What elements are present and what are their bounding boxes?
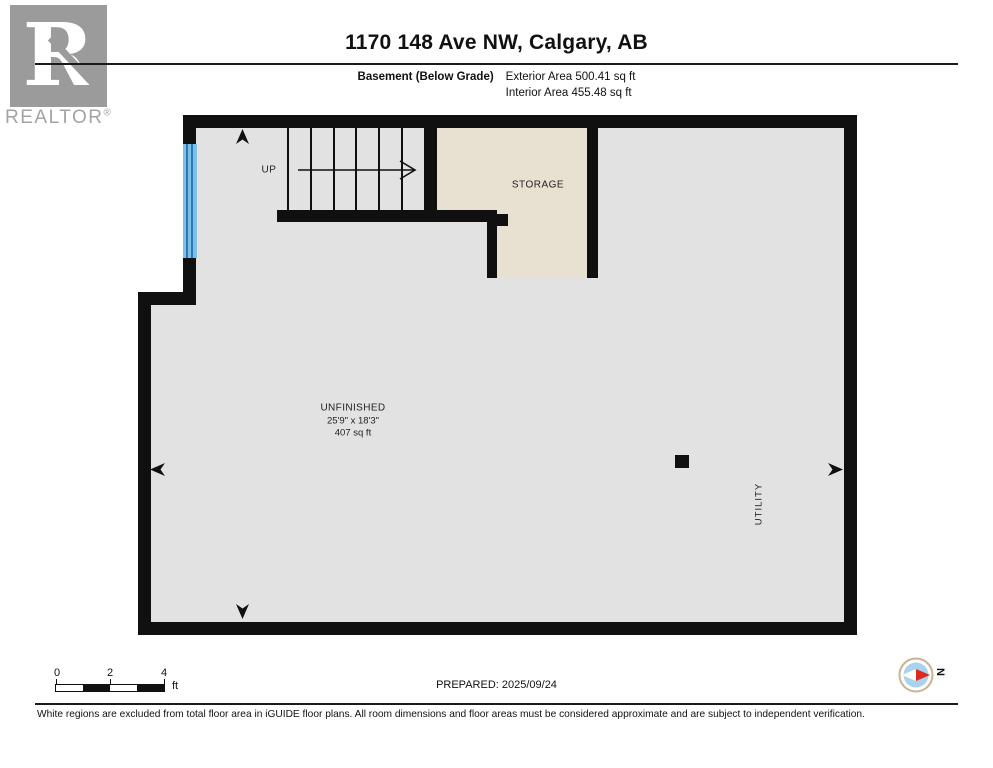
scale-label-2: 2 [107, 667, 113, 679]
area-summary: Exterior Area 500.41 sq ft Interior Area… [506, 69, 636, 101]
floor-storage-lower [497, 222, 587, 278]
realtor-logo-letter: R [23, 13, 94, 99]
disclaimer-text: White regions are excluded from total fl… [37, 709, 973, 720]
window-pane-line [186, 144, 188, 258]
floor-info: Basement (Below Grade) Exterior Area 500… [0, 69, 993, 101]
compass-icon [897, 656, 935, 694]
realtor-wordmark: REALTOR® [5, 107, 112, 129]
unfinished-room-label: UNFINISHED 25'9" x 18'3" 407 sq ft [320, 402, 385, 440]
wall-storage-left-lower [487, 222, 497, 278]
storage-room-label: STORAGE [512, 180, 564, 191]
wall-door-stub [497, 214, 508, 226]
wall-left-lower [138, 292, 151, 635]
realtor-logo: R [10, 5, 107, 107]
room-dimensions: 25'9" x 18'3" [320, 415, 385, 428]
floor-name-label: Basement (Below Grade) [358, 69, 494, 101]
exterior-area-value: Exterior Area 500.41 sq ft [506, 69, 636, 85]
room-area: 407 sq ft [320, 427, 385, 440]
prepared-date: PREPARED: 2025/09/24 [0, 679, 993, 691]
window-pane-line [191, 144, 193, 258]
stair-direction-arrow [296, 157, 422, 183]
header-divider [35, 63, 958, 65]
utility-room-label: UTILITY [754, 483, 765, 525]
interior-area-value: Interior Area 455.48 sq ft [506, 85, 636, 101]
room-name: UNFINISHED [320, 402, 385, 415]
wall-right [844, 115, 857, 635]
window-marker [183, 144, 197, 258]
wall-storage-right [587, 128, 598, 278]
wall-bottom [138, 622, 857, 635]
floor-left-extension [151, 305, 196, 622]
footer-divider [35, 703, 958, 705]
support-post [675, 455, 689, 468]
wall-top [183, 115, 857, 128]
registered-mark: ® [104, 108, 113, 119]
wall-stairs-bottom [277, 210, 497, 222]
wall-stairs-storage-divider [424, 128, 437, 222]
scale-label-0: 0 [54, 667, 60, 679]
scale-label-4: 4 [161, 667, 167, 679]
up-label: UP [262, 165, 277, 176]
page-title: 1170 148 Ave NW, Calgary, AB [0, 31, 993, 55]
floor-storage-upper [434, 128, 587, 222]
compass-north-label: N [934, 668, 946, 676]
